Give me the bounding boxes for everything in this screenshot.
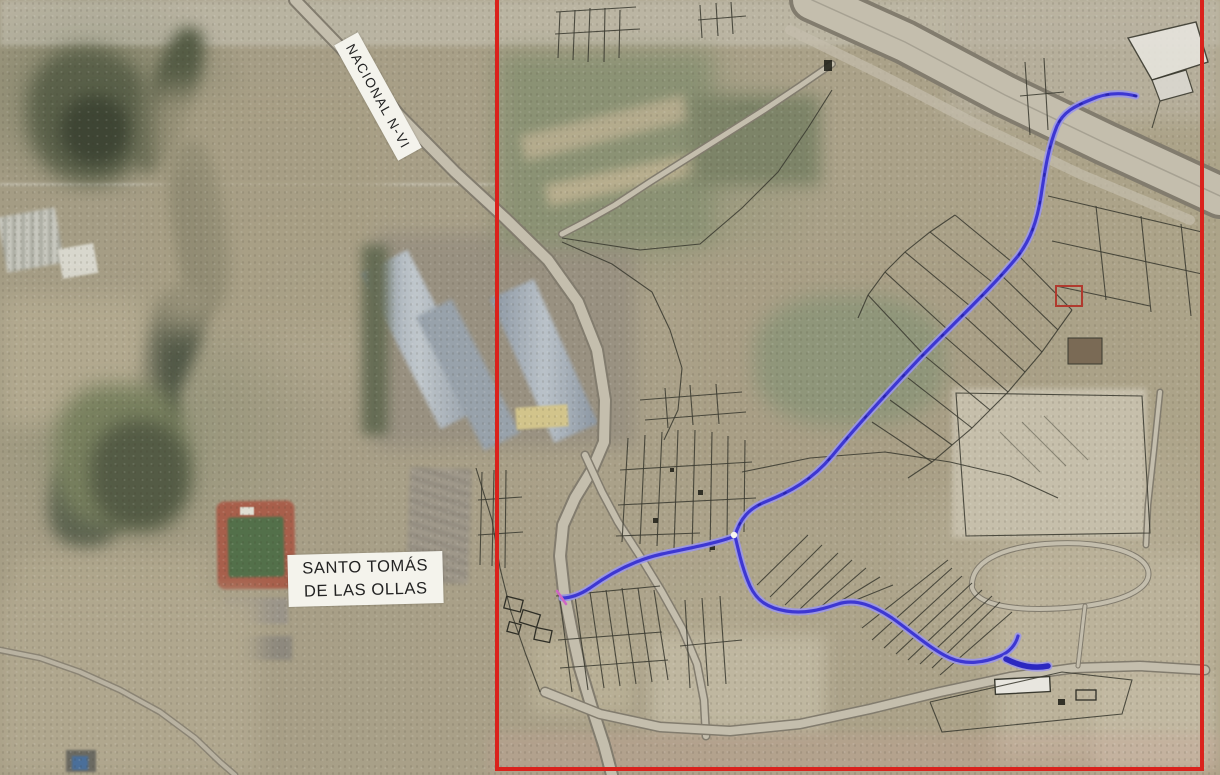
place-label-line1: SANTO TOMÁS xyxy=(302,554,428,580)
place-label-santo-tomas-de-las-ollas: SANTO TOMÁS DE LAS OLLAS xyxy=(287,551,443,607)
study-area-boundary xyxy=(495,0,1204,771)
aerial-map-canvas: NACIONAL N-VI SANTO TOMÁS DE LAS OLLAS xyxy=(0,0,1220,775)
place-label-line2: DE LAS OLLAS xyxy=(304,577,428,603)
